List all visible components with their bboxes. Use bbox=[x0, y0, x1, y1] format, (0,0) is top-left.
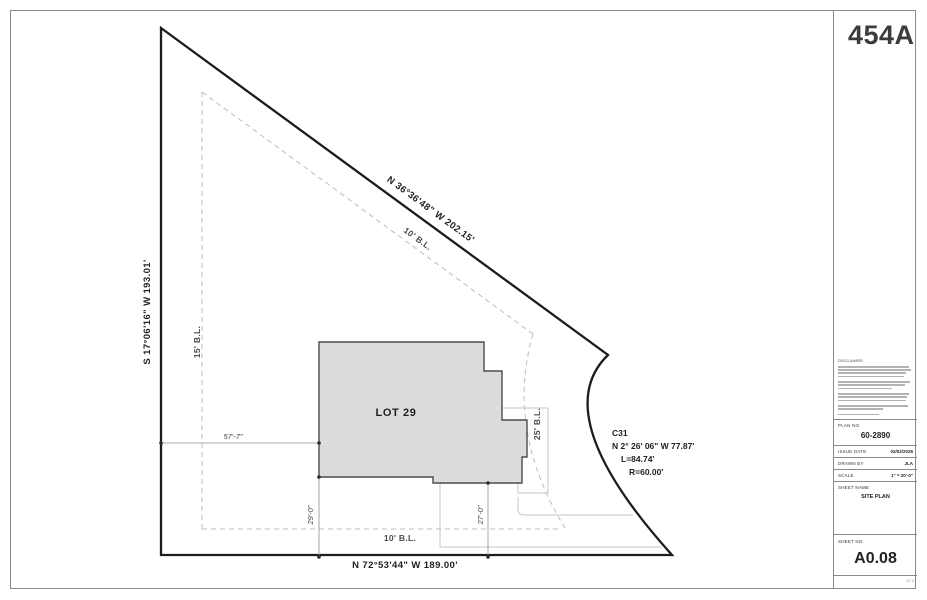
curve-radius: R=60.00' bbox=[629, 467, 663, 477]
plan-no-label: PLAN NO. bbox=[838, 423, 913, 428]
dimension-bottom-left: 29'-0" bbox=[306, 505, 315, 525]
titleblock-row-issue-date: ISSUE DATE 02/02/2026 bbox=[834, 446, 917, 458]
drawn-by-value: JLA bbox=[904, 461, 913, 466]
title-block: 454A DISCLAIMER: bbox=[833, 10, 916, 589]
sheet-no-label: SHEET NO. bbox=[838, 539, 913, 544]
disclaimer-text-lines bbox=[838, 393, 913, 401]
setback-line-right-curve bbox=[524, 334, 565, 528]
setback-label-top: 10' B.L. bbox=[402, 225, 434, 252]
setback-label-left: 15' B.L. bbox=[192, 326, 202, 358]
issue-date-label: ISSUE DATE bbox=[838, 449, 866, 454]
dimension-bottom-right: 27'-0" bbox=[476, 505, 485, 525]
sheet-name-value: SITE PLAN bbox=[838, 494, 913, 500]
disclaimer-text-lines bbox=[838, 366, 913, 377]
version-tag: V2.0 bbox=[834, 576, 917, 583]
bearing-top: N 36°36'48" W 202.15' bbox=[385, 174, 477, 245]
setback-label-bottom: 10' B.L. bbox=[384, 533, 416, 543]
titleblock-row-scale: SCALE 1" = 20'-0" bbox=[834, 470, 917, 482]
plan-no-value: 60-2890 bbox=[838, 431, 913, 440]
plan-badge: 454A bbox=[848, 20, 915, 51]
curve-data-block: C31 N 2° 26' 06" W 77.87' L=84.74' R=60.… bbox=[612, 428, 694, 477]
curve-bearing: N 2° 26' 06" W 77.87' bbox=[612, 441, 694, 451]
bearing-bottom: N 72°53'44" W 189.00' bbox=[352, 560, 458, 571]
titleblock-row-drawn-by: DRAWN BY JLA bbox=[834, 458, 917, 470]
site-plan-sheet: LOT 29 57'-7" 29'-0" 27'-0" S 17°06'16" … bbox=[0, 0, 927, 600]
disclaimer-block: DISCLAIMER: bbox=[834, 358, 917, 415]
disclaimer-text-lines bbox=[838, 405, 913, 410]
scale-label: SCALE bbox=[838, 473, 854, 478]
disclaimer-text-lines bbox=[838, 414, 913, 416]
setback-label-right: 25' B.L. bbox=[532, 408, 542, 440]
issue-date-value: 02/02/2026 bbox=[890, 449, 913, 454]
disclaimer-heading: DISCLAIMER: bbox=[838, 358, 913, 363]
disclaimer-text-lines bbox=[838, 381, 913, 389]
building-footprint bbox=[319, 342, 527, 483]
site-plan-drawing: LOT 29 57'-7" 29'-0" 27'-0" S 17°06'16" … bbox=[0, 0, 927, 600]
dimension-left-width: 57'-7" bbox=[223, 432, 242, 441]
lot-label: LOT 29 bbox=[376, 407, 417, 419]
bearing-left: S 17°06'16" W 193.01' bbox=[142, 259, 153, 364]
drawn-by-label: DRAWN BY bbox=[838, 461, 864, 466]
scale-value: 1" = 20'-0" bbox=[891, 473, 913, 478]
setback-line-top bbox=[202, 92, 533, 334]
walkway-outline bbox=[518, 497, 633, 515]
sheet-no-value: A0.08 bbox=[838, 550, 913, 568]
curve-id: C31 bbox=[612, 428, 628, 438]
sheet-name-label: SHEET NAME bbox=[838, 485, 913, 490]
curve-length: L=84.74' bbox=[621, 454, 654, 464]
